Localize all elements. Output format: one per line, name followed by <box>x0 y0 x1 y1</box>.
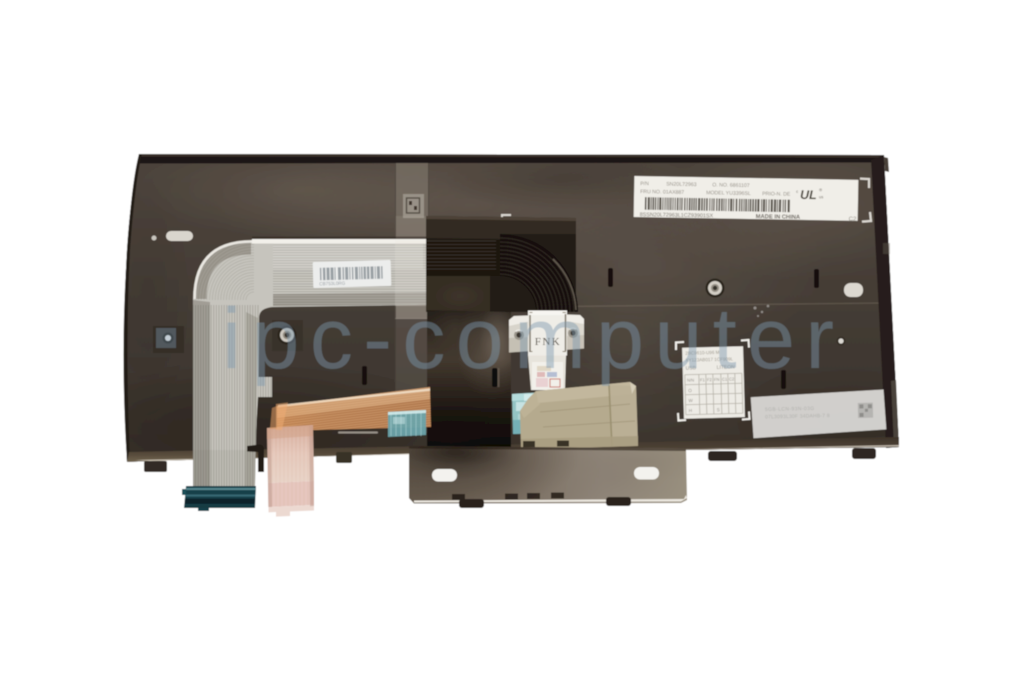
svg-text:UL: UL <box>800 188 817 202</box>
svg-text:MODEL YU3396SL: MODEL YU3396SL <box>706 190 751 197</box>
svg-text:FRU NO. 01AX887: FRU NO. 01AX887 <box>640 189 684 196</box>
svg-text:C2: C2 <box>849 217 857 223</box>
svg-text:PRIO-N. DE: PRIO-N. DE <box>762 191 791 198</box>
svg-text:c: c <box>796 189 798 194</box>
svg-text:O: O <box>688 388 692 393</box>
svg-text:F2: F2 <box>707 377 713 382</box>
svg-text:SN20L72963: SN20L72963 <box>666 182 697 189</box>
svg-text:H: H <box>689 408 692 413</box>
svg-text:O. NO. 6861107: O. NO. 6861107 <box>712 182 750 189</box>
svg-text:S: S <box>717 407 720 412</box>
svg-text:MADE IN CHINA: MADE IN CHINA <box>756 214 801 221</box>
svg-text:P/N: P/N <box>640 181 649 187</box>
svg-text:5GB-LCN-93N-03G: 5GB-LCN-93N-03G <box>765 406 815 413</box>
svg-text:us: us <box>819 194 823 199</box>
svg-text:®: ® <box>819 187 822 192</box>
svg-text:CB753L0RG: CB753L0RG <box>319 281 346 287</box>
svg-text:W: W <box>688 398 693 403</box>
